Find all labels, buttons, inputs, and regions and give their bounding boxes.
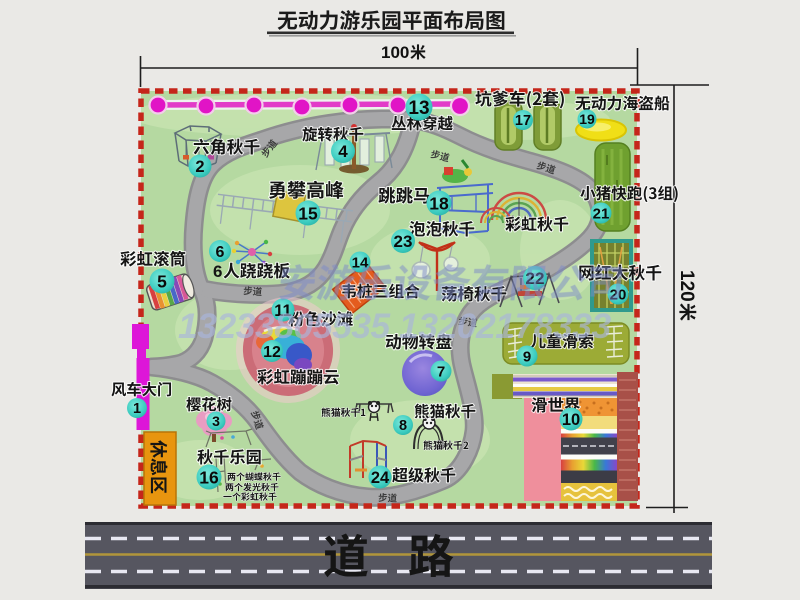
svg-text:9: 9 <box>523 348 531 365</box>
svg-text:3: 3 <box>212 413 220 429</box>
svg-text:17: 17 <box>515 113 531 129</box>
svg-text:19: 19 <box>579 111 595 127</box>
svg-text:23: 23 <box>394 232 413 251</box>
svg-text:16: 16 <box>199 467 219 487</box>
svg-text:4: 4 <box>338 142 348 161</box>
svg-text:10: 10 <box>562 411 580 429</box>
svg-text:120: 120 <box>676 270 697 302</box>
svg-text:21: 21 <box>593 205 610 222</box>
svg-text:2: 2 <box>195 158 204 176</box>
svg-text:12: 12 <box>263 344 281 361</box>
svg-text:1: 1 <box>133 401 141 417</box>
svg-text:100: 100 <box>381 43 409 62</box>
svg-text:15: 15 <box>298 203 318 223</box>
svg-text:24: 24 <box>371 469 390 487</box>
svg-text:18: 18 <box>429 193 449 213</box>
svg-text:6: 6 <box>216 244 225 261</box>
svg-text:5: 5 <box>157 271 167 291</box>
svg-text:8: 8 <box>399 418 407 434</box>
svg-text:13233805535 13202178333: 13233805535 13202178333 <box>178 306 611 346</box>
svg-text:6: 6 <box>213 262 222 281</box>
svg-text:7: 7 <box>437 363 445 380</box>
svg-text:13: 13 <box>408 98 429 119</box>
